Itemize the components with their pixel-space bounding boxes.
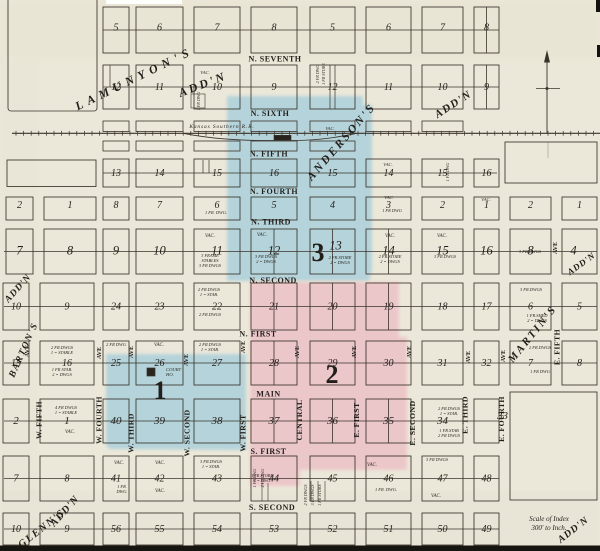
svg-text:16: 16: [269, 168, 279, 179]
svg-text:N. FOURTH: N. FOURTH: [250, 187, 298, 196]
svg-text:2 FR.DWGS: 2 FR.DWGS: [529, 345, 552, 350]
svg-text:26: 26: [155, 358, 165, 369]
svg-text:VAC.: VAC.: [114, 461, 124, 466]
svg-text:2: 2: [440, 200, 445, 211]
svg-text:2 FR DWGS: 2 FR DWGS: [438, 433, 461, 438]
svg-text:21: 21: [269, 302, 279, 313]
svg-text:S. FIRST: S. FIRST: [250, 447, 286, 456]
svg-text:3 FR.DWGS: 3 FR.DWGS: [434, 254, 457, 259]
svg-text:VAC.: VAC.: [383, 162, 392, 167]
svg-text:15: 15: [328, 168, 338, 179]
svg-text:6: 6: [528, 302, 533, 313]
svg-text:E. FOURTH: E. FOURTH: [497, 396, 506, 442]
svg-text:E. SECOND: E. SECOND: [408, 400, 417, 445]
svg-text:19: 19: [384, 302, 394, 313]
svg-text:10: 10: [11, 302, 21, 313]
svg-text:51: 51: [384, 524, 394, 535]
svg-text:50: 50: [438, 524, 448, 535]
svg-text:20: 20: [328, 302, 338, 313]
svg-text:AVE: AVE: [552, 242, 559, 254]
svg-text:VAC.: VAC.: [431, 494, 441, 499]
svg-text:1: 1: [577, 200, 582, 211]
svg-text:N. FIFTH: N. FIFTH: [250, 150, 289, 159]
svg-text:54: 54: [212, 524, 222, 535]
svg-text:N. SEVENTH: N. SEVENTH: [248, 55, 301, 64]
svg-text:13: 13: [329, 239, 342, 253]
svg-text:N. SECOND: N. SECOND: [249, 276, 297, 285]
svg-text:VAC.: VAC.: [367, 463, 377, 468]
svg-text:2: 2: [13, 415, 19, 427]
svg-text:45: 45: [328, 474, 338, 485]
svg-text:10: 10: [153, 244, 166, 258]
svg-text:34: 34: [436, 415, 449, 427]
svg-text:18: 18: [438, 302, 448, 313]
svg-text:6: 6: [386, 23, 391, 34]
svg-text:W. FOURTH: W. FOURTH: [95, 396, 104, 444]
svg-text:AVE: AVE: [240, 341, 247, 353]
svg-text:8: 8: [67, 244, 74, 258]
svg-text:12: 12: [328, 82, 338, 93]
svg-text:1 FR DWG: 1 FR DWG: [445, 163, 450, 182]
svg-text:E. FIFTH: E. FIFTH: [553, 329, 562, 365]
svg-text:CENTRAL: CENTRAL: [295, 400, 304, 441]
svg-text:10: 10: [11, 524, 21, 535]
svg-text:30: 30: [383, 358, 394, 369]
svg-text:W. SECOND: W. SECOND: [183, 409, 192, 456]
svg-text:5: 5: [114, 23, 119, 34]
svg-text:1 = STAB.: 1 = STAB.: [200, 292, 218, 297]
svg-text:E. THIRD: E. THIRD: [461, 396, 470, 434]
svg-text:24: 24: [111, 302, 121, 313]
svg-text:1 FR. DWG.: 1 FR. DWG.: [205, 210, 227, 215]
svg-text:8: 8: [484, 23, 489, 34]
svg-text:5: 5: [330, 23, 335, 34]
svg-text:VAC.: VAC.: [155, 461, 165, 466]
svg-text:1: 1: [154, 376, 167, 405]
svg-text:43: 43: [212, 474, 222, 485]
svg-text:2 FR.DWGS: 2 FR.DWGS: [199, 312, 222, 317]
svg-text:8: 8: [114, 200, 119, 211]
svg-text:2: 2: [17, 200, 22, 211]
svg-text:MAIN: MAIN: [256, 390, 280, 399]
svg-text:2 = DWGS: 2 = DWGS: [52, 372, 72, 377]
svg-text:AVE: AVE: [128, 346, 135, 358]
svg-text:2 FR DWG: 2 FR DWG: [106, 342, 127, 347]
svg-text:S. SECOND: S. SECOND: [249, 503, 295, 512]
svg-text:AVE: AVE: [465, 351, 472, 363]
svg-text:8: 8: [272, 23, 277, 34]
svg-text:VAC.: VAC.: [65, 430, 75, 435]
svg-text:1: 1: [68, 200, 73, 211]
svg-text:28: 28: [269, 358, 279, 369]
svg-text:N. FIRST: N. FIRST: [239, 330, 277, 339]
svg-text:AVE: AVE: [294, 346, 301, 358]
svg-text:AVE: AVE: [96, 347, 103, 359]
svg-text:11: 11: [384, 82, 393, 93]
svg-text:4: 4: [570, 244, 576, 258]
svg-text:W. THIRD: W. THIRD: [127, 413, 136, 453]
svg-text:Scale of Index: Scale of Index: [529, 515, 570, 523]
svg-text:7: 7: [16, 244, 23, 258]
svg-text:DWG.: DWG.: [115, 489, 127, 494]
svg-text:2 FR DWGS: 2 FR DWGS: [303, 484, 308, 506]
svg-text:3 FR DWGS: 3 FR DWGS: [519, 249, 542, 254]
svg-text:9: 9: [65, 524, 70, 535]
svg-text:1 FR. DWG.: 1 FR. DWG.: [375, 487, 397, 492]
svg-text:VAC.: VAC.: [154, 343, 164, 348]
svg-text:2 = DWGS: 2 = DWGS: [380, 259, 400, 264]
svg-text:16: 16: [480, 244, 493, 258]
svg-text:8: 8: [577, 358, 582, 369]
svg-text:17: 17: [482, 302, 493, 313]
svg-text:N. THIRD: N. THIRD: [251, 218, 291, 227]
svg-text:1 FR DWG: 1 FR DWG: [382, 208, 403, 213]
svg-text:VAC.: VAC.: [200, 70, 209, 75]
svg-text:3 FR DWGS: 3 FR DWGS: [426, 457, 449, 462]
svg-text:8: 8: [65, 474, 70, 485]
svg-text:N. SIXTH: N. SIXTH: [251, 109, 290, 118]
svg-text:47: 47: [438, 474, 449, 485]
svg-text:AVE: AVE: [406, 346, 413, 358]
svg-text:46: 46: [384, 474, 394, 485]
svg-text:AVE: AVE: [500, 350, 507, 362]
svg-text:15: 15: [212, 168, 222, 179]
svg-text:37: 37: [268, 415, 281, 427]
svg-text:VAC.: VAC.: [385, 234, 395, 239]
svg-text:VAC.: VAC.: [437, 234, 447, 239]
svg-text:VAC.: VAC.: [205, 234, 215, 239]
svg-text:25: 25: [111, 358, 121, 369]
svg-text:5: 5: [577, 302, 582, 313]
svg-text:1 FR DWG: 1 FR DWG: [530, 369, 551, 374]
svg-text:4: 4: [330, 200, 335, 211]
svg-text:52: 52: [328, 524, 338, 535]
svg-text:1 FR DWG: 1 FR DWG: [196, 92, 201, 111]
svg-text:E. FIRST: E. FIRST: [352, 402, 361, 438]
svg-text:1 FR STORE: 1 FR STORE: [317, 484, 322, 506]
svg-text:VAC.: VAC.: [325, 126, 334, 131]
svg-text:1 = STABLE: 1 = STABLE: [55, 410, 77, 415]
svg-text:1 = STAB.: 1 = STAB.: [440, 411, 458, 416]
svg-text:32: 32: [481, 358, 492, 369]
svg-text:HO.: HO.: [165, 372, 174, 377]
svg-text:300' to Inch.: 300' to Inch.: [530, 524, 566, 532]
svg-text:6: 6: [157, 23, 162, 34]
svg-text:16: 16: [482, 168, 492, 179]
svg-text:9: 9: [113, 244, 120, 258]
svg-text:W. FIRST: W. FIRST: [239, 414, 248, 452]
svg-text:23: 23: [155, 302, 165, 313]
svg-text:14: 14: [384, 168, 394, 179]
svg-text:36: 36: [326, 415, 339, 427]
svg-text:48: 48: [482, 474, 492, 485]
svg-text:9: 9: [65, 302, 70, 313]
svg-text:9: 9: [272, 82, 277, 93]
svg-text:AVE: AVE: [351, 346, 358, 358]
svg-text:1: 1: [64, 415, 70, 427]
svg-text:VAC.: VAC.: [384, 195, 393, 200]
svg-text:3 FR.DWGS: 3 FR.DWGS: [520, 287, 543, 292]
svg-text:14: 14: [155, 168, 165, 179]
svg-text:3: 3: [312, 238, 325, 267]
svg-text:55: 55: [155, 524, 165, 535]
svg-text:35: 35: [382, 415, 395, 427]
svg-text:1 = STAB.: 1 = STAB.: [202, 464, 220, 469]
svg-text:1 FR STORE: 1 FR STORE: [321, 63, 326, 85]
svg-text:1 FR DWG: 1 FR DWG: [252, 469, 257, 488]
svg-text:AVE: AVE: [183, 354, 190, 366]
svg-text:39: 39: [153, 415, 166, 427]
svg-text:2 FR DWG: 2 FR DWG: [260, 469, 265, 488]
svg-text:VAC.: VAC.: [257, 233, 267, 238]
svg-text:2: 2: [528, 200, 533, 211]
svg-text:31: 31: [437, 358, 448, 369]
svg-text:42: 42: [155, 474, 165, 485]
svg-text:VAC.: VAC.: [155, 489, 165, 494]
svg-text:2 = DWGS: 2 = DWGS: [256, 259, 276, 264]
svg-text:2 FR DWG: 2 FR DWG: [315, 65, 320, 84]
svg-text:2 = DWGS: 2 = DWGS: [527, 318, 547, 323]
svg-text:49: 49: [482, 524, 492, 535]
svg-text:5: 5: [272, 200, 277, 211]
svg-text:56: 56: [111, 524, 121, 535]
svg-text:3 FR DWGS: 3 FR DWGS: [310, 484, 315, 506]
svg-text:1 = STABLE: 1 = STABLE: [51, 350, 73, 355]
svg-text:53: 53: [269, 524, 279, 535]
svg-text:9: 9: [484, 82, 489, 93]
svg-text:2 = DWGS: 2 = DWGS: [330, 260, 350, 265]
svg-text:2: 2: [326, 360, 339, 389]
svg-text:W. FIFTH: W. FIFTH: [35, 401, 44, 439]
svg-text:VAC.: VAC.: [481, 197, 490, 202]
svg-text:1 = STAB.: 1 = STAB.: [201, 347, 219, 352]
svg-text:38: 38: [211, 415, 224, 427]
svg-text:13: 13: [111, 168, 121, 179]
svg-text:10: 10: [438, 82, 448, 93]
svg-text:11: 11: [155, 82, 164, 93]
svg-text:40: 40: [111, 415, 123, 427]
svg-text:3 FR DWGS: 3 FR DWGS: [199, 263, 222, 268]
svg-text:Kansas Southern R.R.: Kansas Southern R.R.: [188, 124, 254, 130]
svg-text:27: 27: [212, 358, 223, 369]
